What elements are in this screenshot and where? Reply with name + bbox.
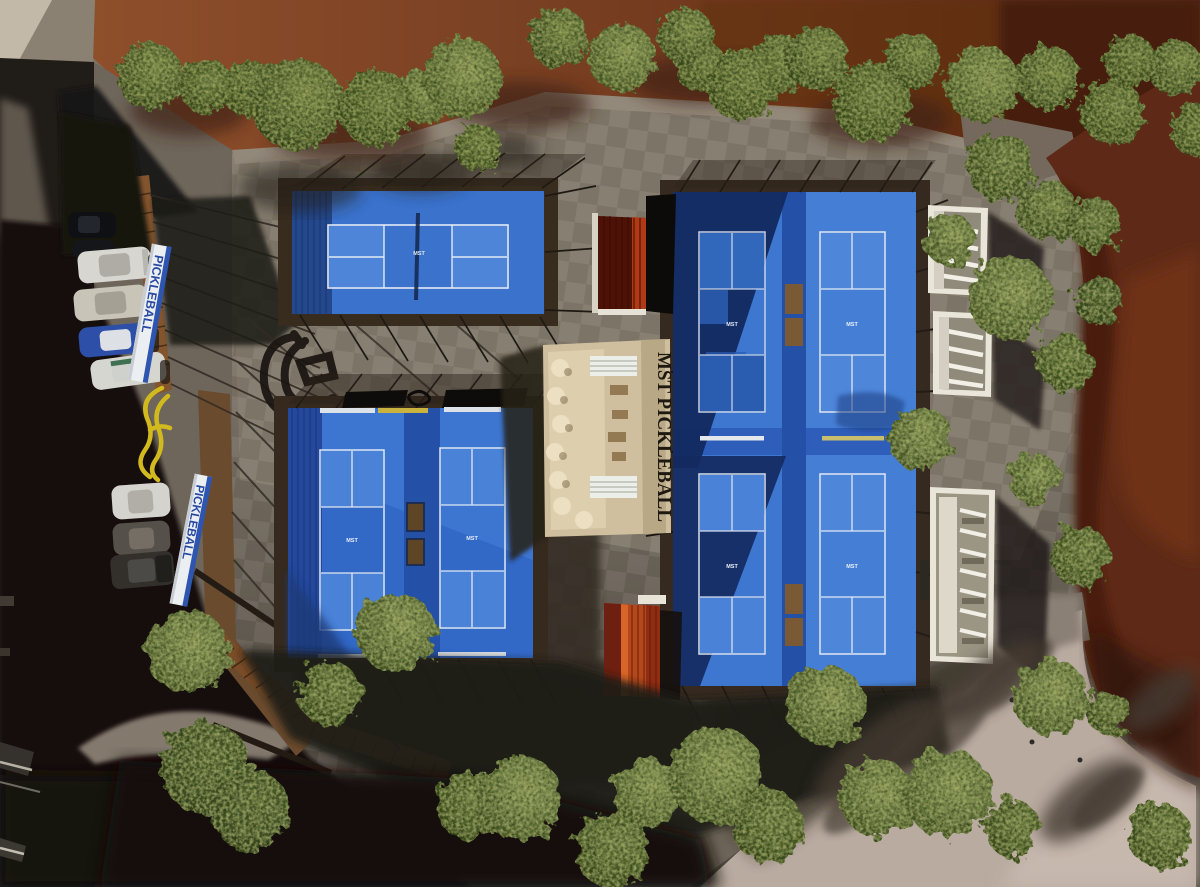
- svg-text:MST: MST: [846, 322, 858, 328]
- svg-text:MST: MST: [346, 538, 358, 544]
- svg-text:MST: MST: [846, 564, 858, 570]
- svg-text:MST: MST: [726, 564, 738, 570]
- svg-text:MST PICKLEBALL: MST PICKLEBALL: [653, 352, 675, 522]
- svg-text:MST: MST: [466, 536, 478, 542]
- svg-text:MST: MST: [726, 322, 738, 328]
- svg-text:MST: MST: [413, 251, 425, 257]
